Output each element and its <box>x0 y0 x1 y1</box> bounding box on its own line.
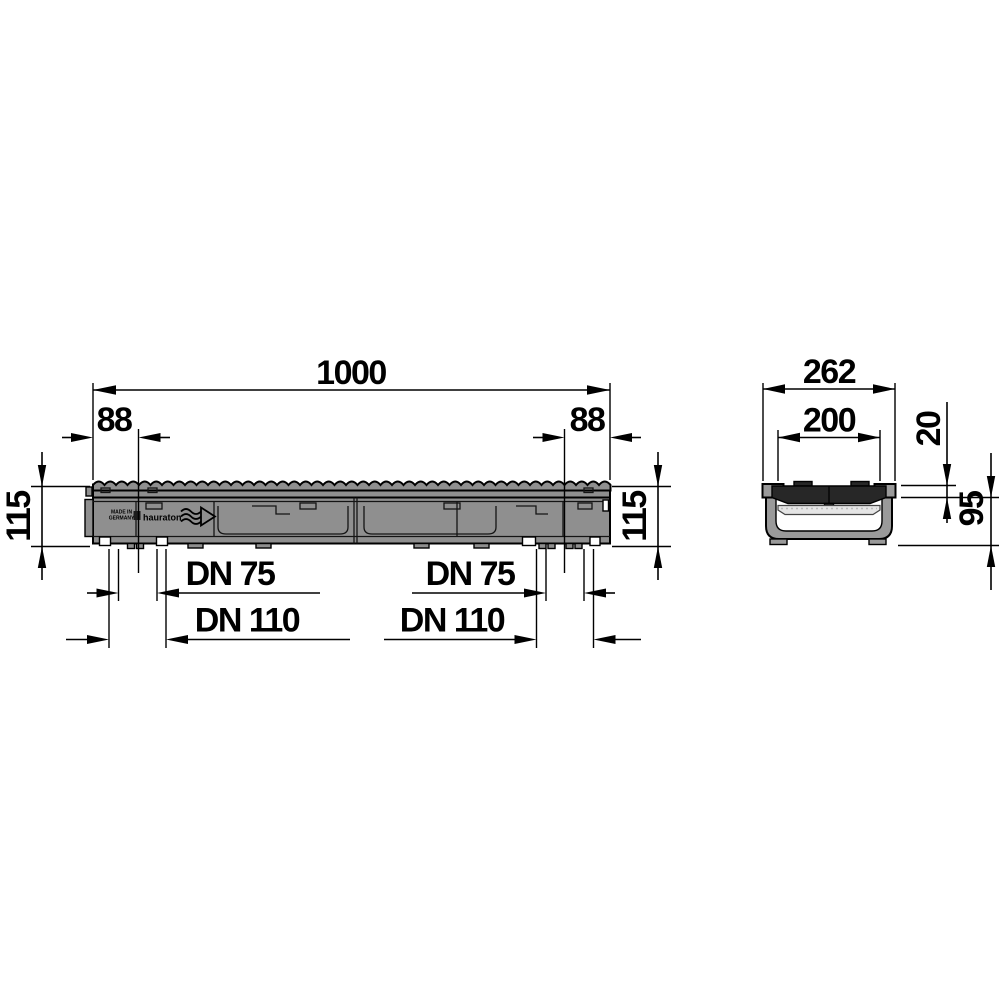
dim-label-grate-width: 200 <box>803 402 856 440</box>
outlet-socket <box>157 537 168 546</box>
outlet-socket <box>590 537 600 546</box>
end-lock-notch <box>603 500 609 511</box>
dim-overall-length: 1000 <box>93 354 610 480</box>
dim-grate-depth: 20 <box>901 402 956 523</box>
dim-label-grate-depth: 20 <box>910 411 948 446</box>
made-in-text-line2: GERMANY <box>109 516 135 522</box>
brand-logo-mark <box>134 511 141 520</box>
brand-logo-text: hauraton <box>143 513 182 523</box>
foot-tab <box>566 544 573 549</box>
seal-strip <box>778 506 880 515</box>
dim-label-left-offset: 88 <box>97 401 132 439</box>
channel-cross-section-view <box>763 482 896 545</box>
dim-height-left: 115 <box>0 452 90 580</box>
foot-tab <box>256 544 271 549</box>
foot-tab <box>548 544 555 549</box>
grate-scallop-edge <box>93 482 611 491</box>
dim-label-dn75-right: DN 75 <box>426 555 515 593</box>
dim-label-height-right: 115 <box>616 491 654 542</box>
dim-label-overall-width: 262 <box>803 353 856 391</box>
end-cap-tab <box>85 500 93 537</box>
channel-side-view: MADE IN GERMANY hauraton <box>85 482 611 549</box>
end-cap-top-tab <box>86 487 92 496</box>
dim-label-right-offset: 88 <box>570 401 605 439</box>
foot-tab <box>539 544 546 549</box>
foot-tab <box>575 544 582 549</box>
dim-dn75-left: DN 75 <box>87 549 320 601</box>
foot-tab <box>137 544 144 549</box>
foot-tab <box>188 544 203 549</box>
section-right-foot <box>869 539 886 545</box>
dim-label-body-depth: 95 <box>953 491 991 526</box>
foot-tab <box>474 544 489 549</box>
dim-dn75-right: DN 75 <box>412 549 615 601</box>
dim-label-dn110-right: DN 110 <box>400 602 505 640</box>
outlet-socket <box>100 537 111 546</box>
foot-tab <box>128 544 135 549</box>
drawing-canvas: MADE IN GERMANY hauraton <box>0 0 1000 1000</box>
dim-label-height-left: 115 <box>0 491 38 542</box>
dim-label-overall-length: 1000 <box>316 354 386 392</box>
outlet-socket <box>523 537 536 546</box>
dim-grate-clear-width: 200 <box>778 402 880 482</box>
dim-label-dn75-left: DN 75 <box>186 555 275 593</box>
dim-height-right: 115 <box>612 452 671 580</box>
foot-tab <box>414 544 429 549</box>
technical-drawing: MADE IN GERMANY hauraton <box>0 0 1000 1000</box>
dim-label-dn110-left: DN 110 <box>195 602 300 640</box>
section-left-foot <box>770 539 787 545</box>
